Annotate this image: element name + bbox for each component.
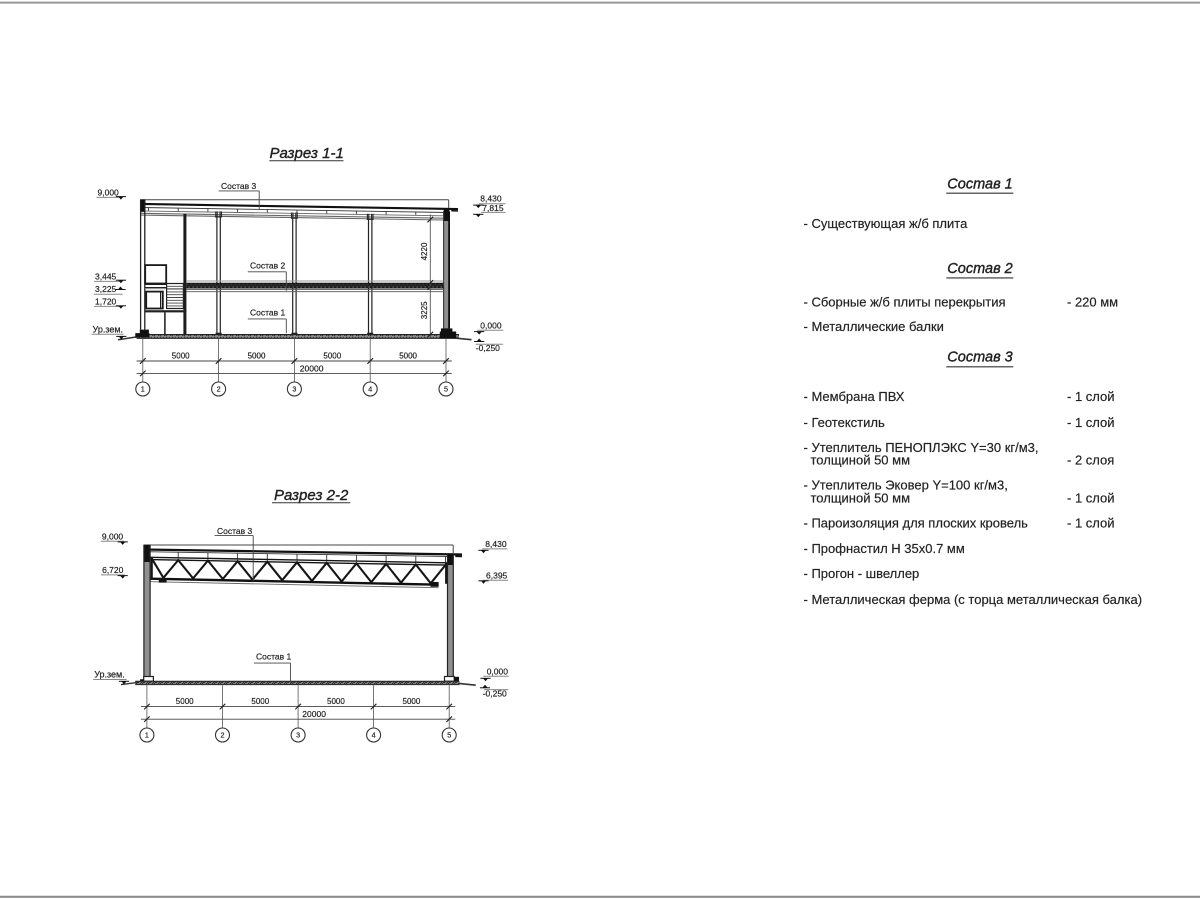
svg-text:Состав 1: Состав 1 bbox=[256, 652, 292, 662]
svg-text:- 1 слой: - 1 слой bbox=[1067, 516, 1115, 531]
svg-text:Состав 3: Состав 3 bbox=[947, 349, 1012, 365]
svg-text:1: 1 bbox=[145, 731, 149, 740]
svg-text:5000: 5000 bbox=[248, 352, 266, 361]
svg-text:- Металлическая ферма (с торца: - Металлическая ферма (с торца металличе… bbox=[804, 592, 1143, 607]
svg-text:Ур.зем.: Ур.зем. bbox=[94, 670, 125, 680]
svg-text:Ур.зем.: Ур.зем. bbox=[93, 324, 124, 334]
svg-text:0,000: 0,000 bbox=[480, 320, 502, 330]
svg-text:4: 4 bbox=[372, 731, 376, 740]
svg-text:- Существующая ж/б плита: - Существующая ж/б плита bbox=[804, 216, 969, 231]
svg-text:3,225: 3,225 bbox=[95, 284, 117, 294]
svg-text:- 1 слой: - 1 слой bbox=[1067, 491, 1115, 506]
svg-text:5000: 5000 bbox=[327, 697, 345, 706]
svg-text:2: 2 bbox=[217, 385, 221, 394]
svg-text:6,395: 6,395 bbox=[486, 570, 508, 580]
svg-text:- 1 слой: - 1 слой bbox=[1067, 415, 1115, 430]
svg-text:5000: 5000 bbox=[172, 352, 190, 361]
svg-text:2: 2 bbox=[221, 731, 225, 740]
svg-text:- Профнастил Н 35х0.7 мм: - Профнастил Н 35х0.7 мм bbox=[804, 541, 965, 556]
svg-text:9,000: 9,000 bbox=[98, 187, 120, 197]
svg-text:-0,250: -0,250 bbox=[476, 343, 500, 353]
svg-text:Состав 3: Состав 3 bbox=[221, 181, 257, 191]
svg-text:Разрез 1-1: Разрез 1-1 bbox=[270, 145, 344, 162]
svg-text:3225: 3225 bbox=[420, 301, 429, 319]
svg-text:4220: 4220 bbox=[420, 242, 429, 260]
svg-text:5: 5 bbox=[447, 731, 451, 740]
svg-text:5000: 5000 bbox=[323, 352, 341, 361]
svg-text:- Сборные ж/б плиты перекрытия: - Сборные ж/б плиты перекрытия bbox=[804, 295, 1006, 310]
svg-text:4: 4 bbox=[368, 385, 372, 394]
svg-text:Разрез 2-2: Разрез 2-2 bbox=[274, 487, 349, 504]
svg-text:7,815: 7,815 bbox=[482, 203, 504, 213]
svg-text:8,430: 8,430 bbox=[485, 539, 507, 549]
svg-text:Состав 3: Состав 3 bbox=[217, 526, 253, 536]
svg-text:5000: 5000 bbox=[399, 352, 417, 361]
svg-text:20000: 20000 bbox=[300, 364, 324, 374]
svg-text:1: 1 bbox=[141, 385, 145, 394]
svg-text:5000: 5000 bbox=[176, 697, 194, 706]
svg-text:3: 3 bbox=[296, 731, 300, 740]
svg-text:0,000: 0,000 bbox=[487, 666, 509, 676]
svg-text:- Пароизоляция для плоских кро: - Пароизоляция для плоских кровель bbox=[804, 516, 1029, 531]
svg-text:- 220 мм: - 220 мм bbox=[1067, 295, 1118, 310]
svg-text:5: 5 bbox=[444, 385, 448, 394]
svg-text:20000: 20000 bbox=[302, 709, 326, 719]
svg-text:Состав 2: Состав 2 bbox=[250, 260, 286, 270]
svg-text:9,000: 9,000 bbox=[102, 531, 124, 541]
svg-text:5000: 5000 bbox=[251, 697, 269, 706]
svg-text:5000: 5000 bbox=[403, 697, 421, 706]
svg-text:толщиной 50 мм: толщиной 50 мм bbox=[811, 452, 911, 467]
svg-text:1,720: 1,720 bbox=[95, 296, 117, 306]
svg-text:6,720: 6,720 bbox=[102, 565, 124, 575]
svg-text:Состав 1: Состав 1 bbox=[947, 177, 1012, 193]
svg-text:3,445: 3,445 bbox=[95, 271, 117, 281]
svg-text:- Мембрана ПВХ: - Мембрана ПВХ bbox=[804, 389, 905, 404]
svg-text:- Прогон - швеллер: - Прогон - швеллер bbox=[804, 566, 920, 581]
svg-text:-0,250: -0,250 bbox=[483, 688, 507, 698]
svg-text:толщиной 50 мм: толщиной 50 мм bbox=[811, 491, 911, 506]
svg-text:- 1 слой: - 1 слой bbox=[1067, 389, 1115, 404]
svg-text:- 2 слоя: - 2 слоя bbox=[1067, 452, 1114, 467]
svg-text:- Металлические балки: - Металлические балки bbox=[804, 319, 944, 334]
svg-text:3: 3 bbox=[292, 385, 296, 394]
svg-text:- Геотекстиль: - Геотекстиль bbox=[804, 415, 885, 430]
svg-text:Состав 2: Состав 2 bbox=[947, 261, 1012, 277]
svg-text:Состав 1: Состав 1 bbox=[250, 307, 286, 317]
